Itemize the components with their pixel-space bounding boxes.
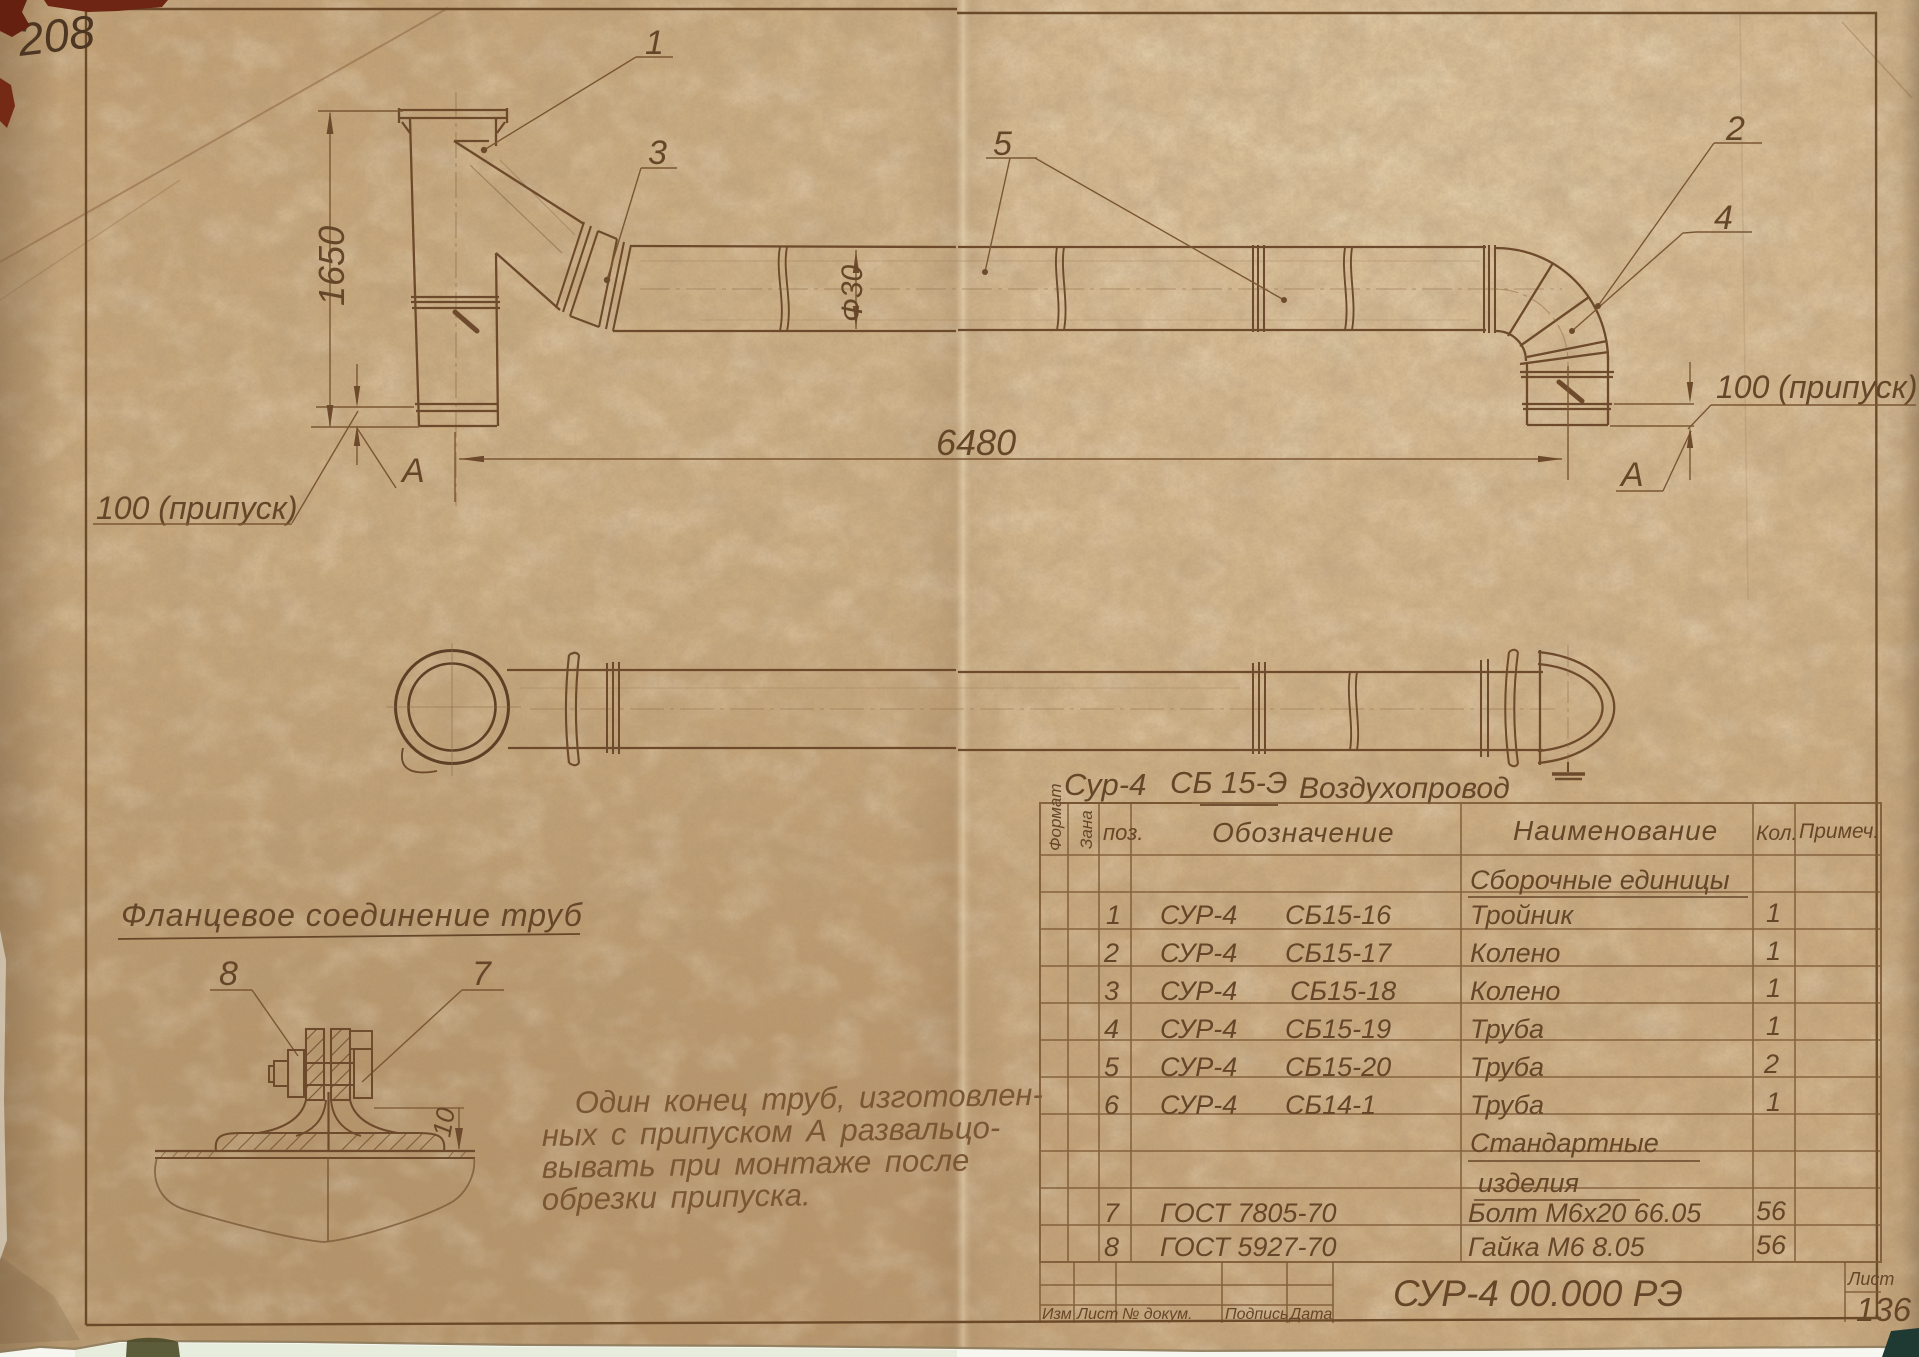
svg-text:Лист: Лист [1847, 1269, 1894, 1289]
svg-text:А: А [400, 452, 425, 490]
svg-text:Сборочные единицы: Сборочные единицы [1470, 865, 1730, 895]
svg-text:Болт М6х20 66.05: Болт М6х20 66.05 [1468, 1198, 1702, 1228]
svg-text:СБ14-1: СБ14-1 [1285, 1090, 1376, 1120]
svg-text:7: 7 [472, 955, 492, 993]
svg-text:3: 3 [648, 134, 667, 172]
svg-text:4: 4 [1714, 199, 1733, 237]
svg-text:Фланцевое соединение труб: Фланцевое соединение труб [121, 897, 583, 933]
svg-text:6: 6 [1104, 1090, 1120, 1120]
svg-text:Колено: Колено [1470, 976, 1560, 1006]
svg-text:ГОСТ 5927-70: ГОСТ 5927-70 [1160, 1232, 1336, 1262]
svg-text:4: 4 [1104, 1014, 1119, 1044]
svg-text:обрезки припуска.: обрезки припуска. [542, 1177, 811, 1217]
svg-text:8: 8 [219, 955, 238, 993]
svg-text:56: 56 [1756, 1230, 1787, 1260]
svg-text:СУР-4: СУР-4 [1160, 976, 1237, 1006]
svg-text:изделия: изделия [1478, 1168, 1579, 1198]
svg-text:А: А [1619, 456, 1644, 494]
svg-text:СУР-4: СУР-4 [1160, 938, 1237, 968]
svg-text:Обозначение: Обозначение [1212, 817, 1395, 848]
svg-text:СУР-4: СУР-4 [1160, 1090, 1237, 1120]
svg-text:Воздухопровод: Воздухопровод [1299, 772, 1510, 805]
svg-text:6480: 6480 [936, 422, 1016, 463]
svg-text:3: 3 [1104, 976, 1119, 1006]
svg-text:Колено: Колено [1470, 938, 1560, 968]
svg-text:56: 56 [1756, 1196, 1787, 1226]
svg-text:Сур-4: Сур-4 [1064, 767, 1146, 802]
svg-text:СУР-4 00.000 РЭ: СУР-4 00.000 РЭ [1393, 1273, 1683, 1314]
svg-text:СБ 15-Э: СБ 15-Э [1170, 765, 1288, 800]
svg-text:Примеч.: Примеч. [1799, 820, 1879, 843]
svg-text:1: 1 [1766, 1087, 1781, 1117]
svg-text:1650: 1650 [311, 226, 352, 306]
svg-text:1: 1 [1106, 900, 1121, 930]
svg-text:1: 1 [645, 24, 664, 62]
svg-text:208: 208 [14, 5, 98, 66]
svg-text:2: 2 [1763, 1049, 1779, 1079]
svg-text:Кол.: Кол. [1756, 822, 1797, 845]
svg-text:7: 7 [1104, 1198, 1120, 1228]
svg-text:СБ15-19: СБ15-19 [1285, 1014, 1391, 1044]
svg-text:8: 8 [1104, 1232, 1119, 1262]
svg-text:136: 136 [1856, 1291, 1912, 1328]
svg-text:СБ15-18: СБ15-18 [1290, 976, 1396, 1006]
svg-text:1: 1 [1766, 973, 1781, 1003]
svg-text:Формат: Формат [1046, 783, 1065, 851]
svg-text:10: 10 [426, 1105, 461, 1139]
svg-text:СБ15-16: СБ15-16 [1285, 900, 1392, 930]
svg-text:Зана: Зана [1077, 810, 1096, 849]
svg-text:Труба: Труба [1470, 1014, 1544, 1044]
svg-text:2: 2 [1103, 938, 1119, 968]
svg-text:1: 1 [1766, 936, 1781, 966]
svg-text:Ф30: Ф30 [836, 264, 869, 322]
svg-text:СБ15-17: СБ15-17 [1285, 938, 1392, 968]
svg-text:Гайка М6 8.05: Гайка М6 8.05 [1468, 1232, 1646, 1262]
svg-text:5: 5 [1104, 1052, 1120, 1082]
svg-text:Стандартные: Стандартные [1470, 1128, 1659, 1158]
svg-text:Тройник: Тройник [1470, 900, 1575, 930]
svg-text:Труба: Труба [1470, 1090, 1544, 1120]
svg-text:ГОСТ 7805-70: ГОСТ 7805-70 [1160, 1198, 1336, 1228]
svg-text:1: 1 [1766, 898, 1781, 928]
svg-text:5: 5 [993, 125, 1012, 163]
svg-text:100 (припуск): 100 (припуск) [1716, 369, 1918, 405]
svg-text:СУР-4: СУР-4 [1160, 1052, 1237, 1082]
svg-text:СУР-4: СУР-4 [1160, 900, 1237, 930]
svg-text:СБ15-20: СБ15-20 [1285, 1052, 1391, 1082]
svg-text:100 (припуск): 100 (припуск) [96, 490, 298, 526]
svg-text:СУР-4: СУР-4 [1160, 1014, 1237, 1044]
svg-text:Наименование: Наименование [1513, 815, 1718, 846]
svg-text:поз.: поз. [1103, 820, 1143, 845]
svg-text:Труба: Труба [1470, 1052, 1544, 1082]
svg-text:1: 1 [1766, 1011, 1781, 1041]
